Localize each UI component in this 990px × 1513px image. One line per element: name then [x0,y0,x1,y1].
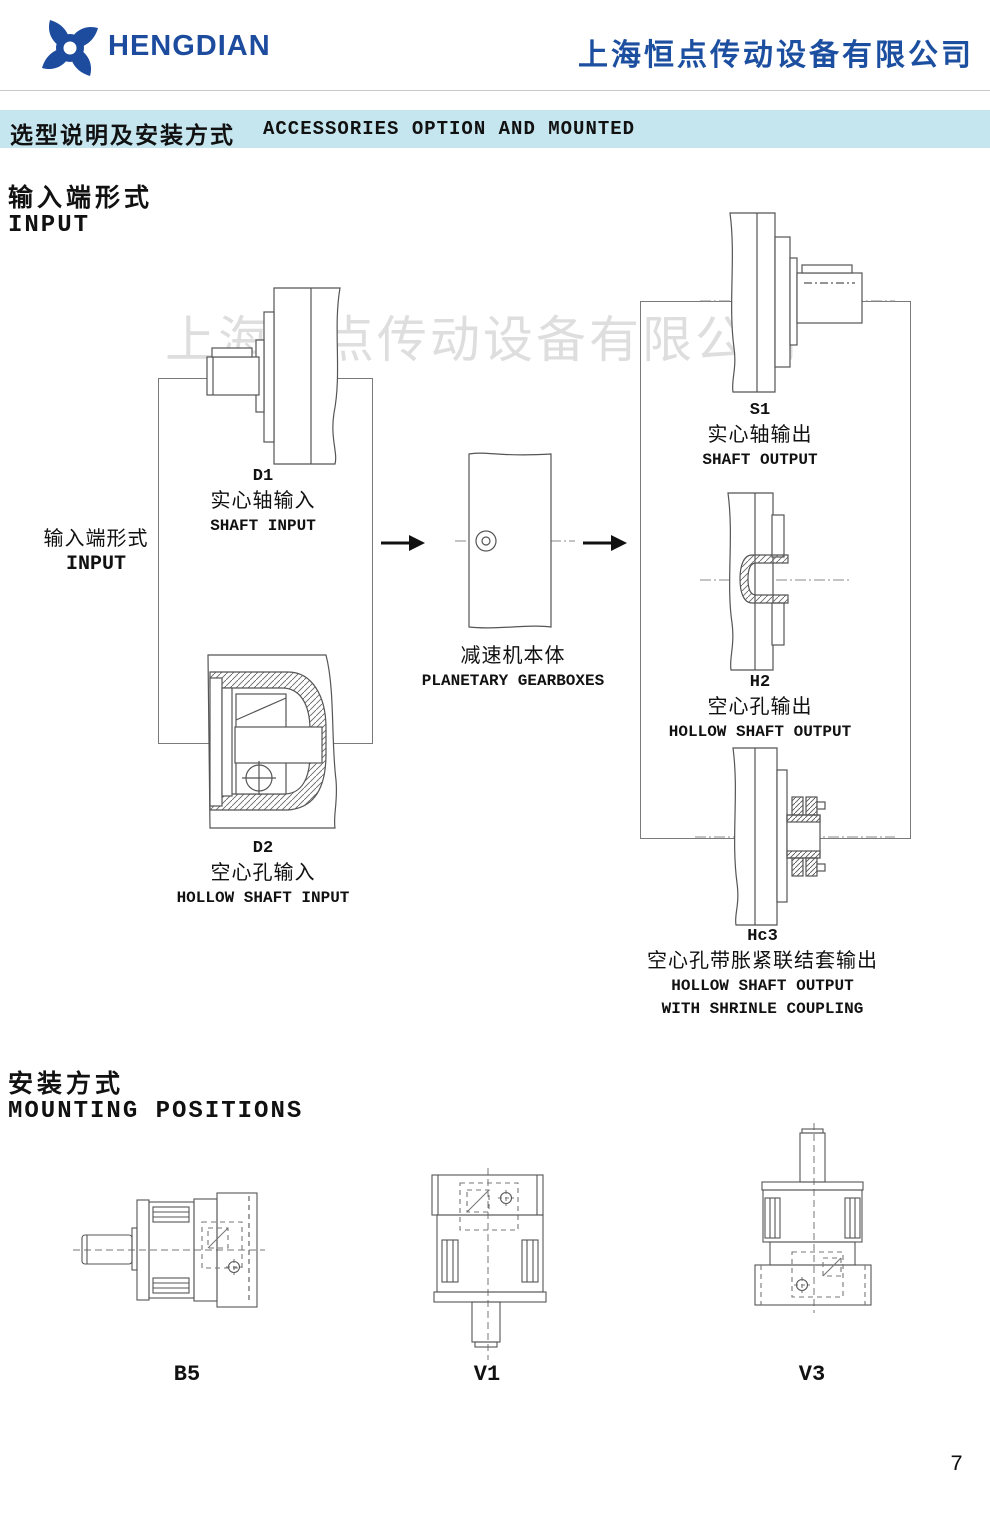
hc3-label: Hc3 空心孔带胀紧联结套输出 HOLLOW SHAFT OUTPUT WITH… [640,926,885,1021]
page-header: HENGDIAN 上海恒点传动设备有限公司 [0,0,990,91]
gearbox-name-zh: 减速机本体 [413,643,613,670]
section-title-en: ACCESSORIES OPTION AND MOUNTED [263,118,635,140]
d2-name-zh: 空心孔输入 [163,860,363,887]
hengdian-logo-icon [38,16,102,80]
gearbox-name-en: PLANETARY GEARBOXES [413,670,613,693]
hc3-name-zh: 空心孔带胀紧联结套输出 [640,948,885,975]
h2-name-zh: 空心孔输出 [660,694,860,721]
section-title-bar: 选型说明及安装方式 ACCESSORIES OPTION AND MOUNTED [0,110,990,148]
d1-label: D1 实心轴输入 SHAFT INPUT [163,466,363,538]
input-heading-en: INPUT [8,212,153,240]
gearbox-label: 减速机本体 PLANETARY GEARBOXES [413,643,613,693]
section-title-zh: 选型说明及安装方式 [10,116,235,150]
v3-code: V3 [762,1362,862,1387]
b5-code: B5 [137,1362,237,1387]
d2-label: D2 空心孔输入 HOLLOW SHAFT INPUT [163,838,363,910]
v1-mounting-drawing [425,1168,560,1363]
v3-label: V3 [762,1362,862,1387]
logo-text: HENGDIAN [108,30,271,63]
h2-name-en: HOLLOW SHAFT OUTPUT [660,721,860,744]
h2-hollow-shaft-output-drawing [700,483,850,678]
v1-label: V1 [437,1362,537,1387]
hc3-code: Hc3 [640,926,885,948]
input-side-label-en: INPUT [36,553,156,576]
planetary-gearbox-body-drawing [450,448,580,633]
b5-label: B5 [137,1362,237,1387]
input-section-heading: 输入端形式 INPUT [8,184,153,240]
mounting-heading-zh: 安装方式 [8,1070,303,1098]
d2-name-en: HOLLOW SHAFT INPUT [163,887,363,910]
company-name: 上海恒点传动设备有限公司 [578,30,974,74]
b5-mounting-drawing [70,1188,320,1313]
s1-name-en: SHAFT OUTPUT [660,449,860,472]
d1-code: D1 [163,466,363,488]
hc3-name-en: HOLLOW SHAFT OUTPUT [640,975,885,998]
mounting-section-heading: 安装方式 MOUNTING POSITIONS [8,1070,303,1126]
input-side-label: 输入端形式 INPUT [36,526,156,576]
h2-code: H2 [660,672,860,694]
v1-code: V1 [437,1362,537,1387]
arrow-right-icon [583,533,627,553]
h2-label: H2 空心孔输出 HOLLOW SHAFT OUTPUT [660,672,860,744]
d1-name-zh: 实心轴输入 [163,488,363,515]
arrow-right-icon [381,533,425,553]
s1-code: S1 [660,400,860,422]
catalog-page: HENGDIAN 上海恒点传动设备有限公司 选型说明及安装方式 ACCESSOR… [0,0,990,1513]
s1-name-zh: 实心轴输出 [660,422,860,449]
d1-name-en: SHAFT INPUT [163,515,363,538]
d2-code: D2 [163,838,363,860]
input-heading-zh: 输入端形式 [8,184,153,212]
s1-label: S1 实心轴输出 SHAFT OUTPUT [660,400,860,472]
hc3-shrink-coupling-output-drawing [695,743,895,943]
s1-shaft-output-drawing [700,203,895,403]
input-side-label-zh: 输入端形式 [36,526,156,553]
d2-hollow-shaft-input-drawing [196,650,351,836]
mounting-heading-en: MOUNTING POSITIONS [8,1098,303,1126]
page-number: 7 [950,1452,963,1477]
d1-shaft-input-drawing [168,283,353,468]
hc3-name-en2: WITH SHRINLE COUPLING [640,998,885,1021]
v3-mounting-drawing [738,1123,913,1318]
